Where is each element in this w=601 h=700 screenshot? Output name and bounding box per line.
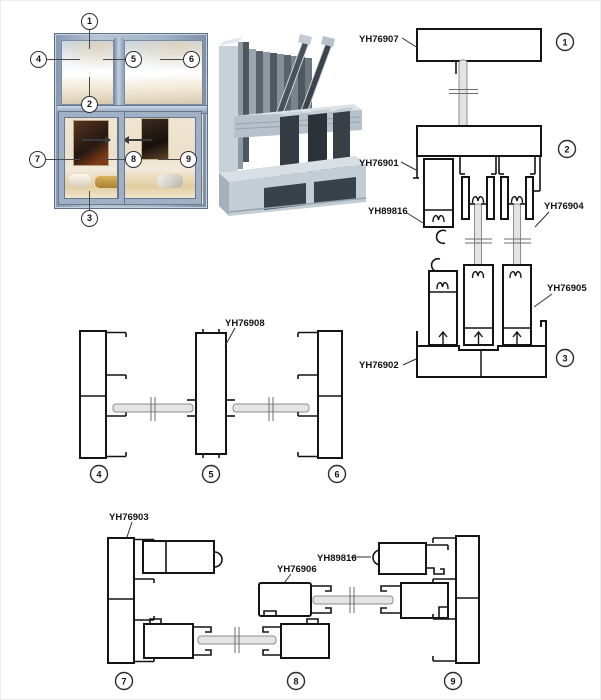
marker-1: 1 (562, 38, 567, 48)
callout-9: 9 (180, 151, 197, 168)
leader-8 (102, 159, 125, 160)
jamb-flanges (298, 333, 318, 457)
leader-5 (103, 59, 125, 60)
mullion-profile (196, 333, 226, 454)
leader-2 (89, 77, 90, 96)
hook-sash-profile (424, 159, 453, 227)
sliding-sash-left (59, 112, 124, 204)
callout-5: 5 (125, 51, 142, 68)
hook-stile-profile (379, 543, 426, 574)
label-head-profile: YH76907 (359, 34, 399, 45)
label-sash-bottom-profile: YH76905 (547, 283, 587, 294)
diagram-canvas: 1 2 3 4 5 6 7 8 9 (0, 0, 601, 700)
jamb-flanges (106, 333, 126, 457)
label-track-profile: YH76901 (359, 158, 399, 169)
leader-1 (89, 30, 90, 49)
right-jamb-profile (456, 536, 479, 663)
leader-4 (47, 59, 80, 60)
callout-6: 6 (183, 51, 200, 68)
profile-3d-render (206, 16, 371, 221)
label-jamb-profile: YH76903 (109, 512, 149, 523)
callout-7: 7 (29, 151, 46, 168)
callout-8: 8 (125, 151, 142, 168)
section-horizontal-top-drawing: YH76908 4 5 6 (61, 301, 361, 491)
callout-1: 1 (81, 13, 98, 30)
marker-6: 6 (334, 470, 339, 480)
glass-pane (313, 596, 393, 604)
marker-3: 3 (562, 354, 567, 364)
head-frame-profile (417, 29, 541, 61)
track-profile (417, 126, 541, 156)
marker-5: 5 (208, 470, 213, 480)
lock-stile-profile (143, 541, 214, 573)
callout-3: 3 (81, 210, 98, 227)
upper-mullion (114, 38, 124, 105)
right-jamb-profile (318, 331, 342, 458)
glass-pane (233, 404, 309, 412)
hook-detail (214, 552, 222, 567)
left-jamb-profile (108, 538, 134, 663)
label-mullion-profile: YH76908 (225, 318, 265, 329)
section-vertical-drawing: YH76907 (356, 21, 601, 381)
marker-4: 4 (96, 470, 101, 480)
label-hook-profile: YH89816 (368, 206, 408, 217)
glass-pane (198, 636, 276, 644)
label-sill-profile: YH76902 (359, 360, 399, 371)
left-jamb-profile (80, 331, 106, 458)
label-hook-profile: YH89816 (317, 553, 357, 564)
leader-7 (46, 159, 80, 160)
upper-glass-right (124, 40, 203, 105)
leader-6 (160, 59, 183, 60)
marker-7: 7 (121, 677, 126, 687)
marker-8: 8 (293, 677, 298, 687)
callout-4: 4 (30, 51, 47, 68)
section-horizontal-bottom-drawing: YH76903 (81, 501, 561, 700)
callout-2: 2 (81, 96, 98, 113)
hook-detail (437, 230, 446, 243)
label-interlock-profile: YH76906 (277, 564, 317, 575)
leader-9 (158, 159, 180, 160)
label-sash-profile: YH76904 (544, 201, 584, 212)
glass-pane (113, 404, 193, 412)
leader-3 (89, 191, 90, 210)
marker-9: 9 (450, 677, 455, 687)
marker-2: 2 (564, 145, 569, 155)
hook-detail (432, 259, 441, 272)
